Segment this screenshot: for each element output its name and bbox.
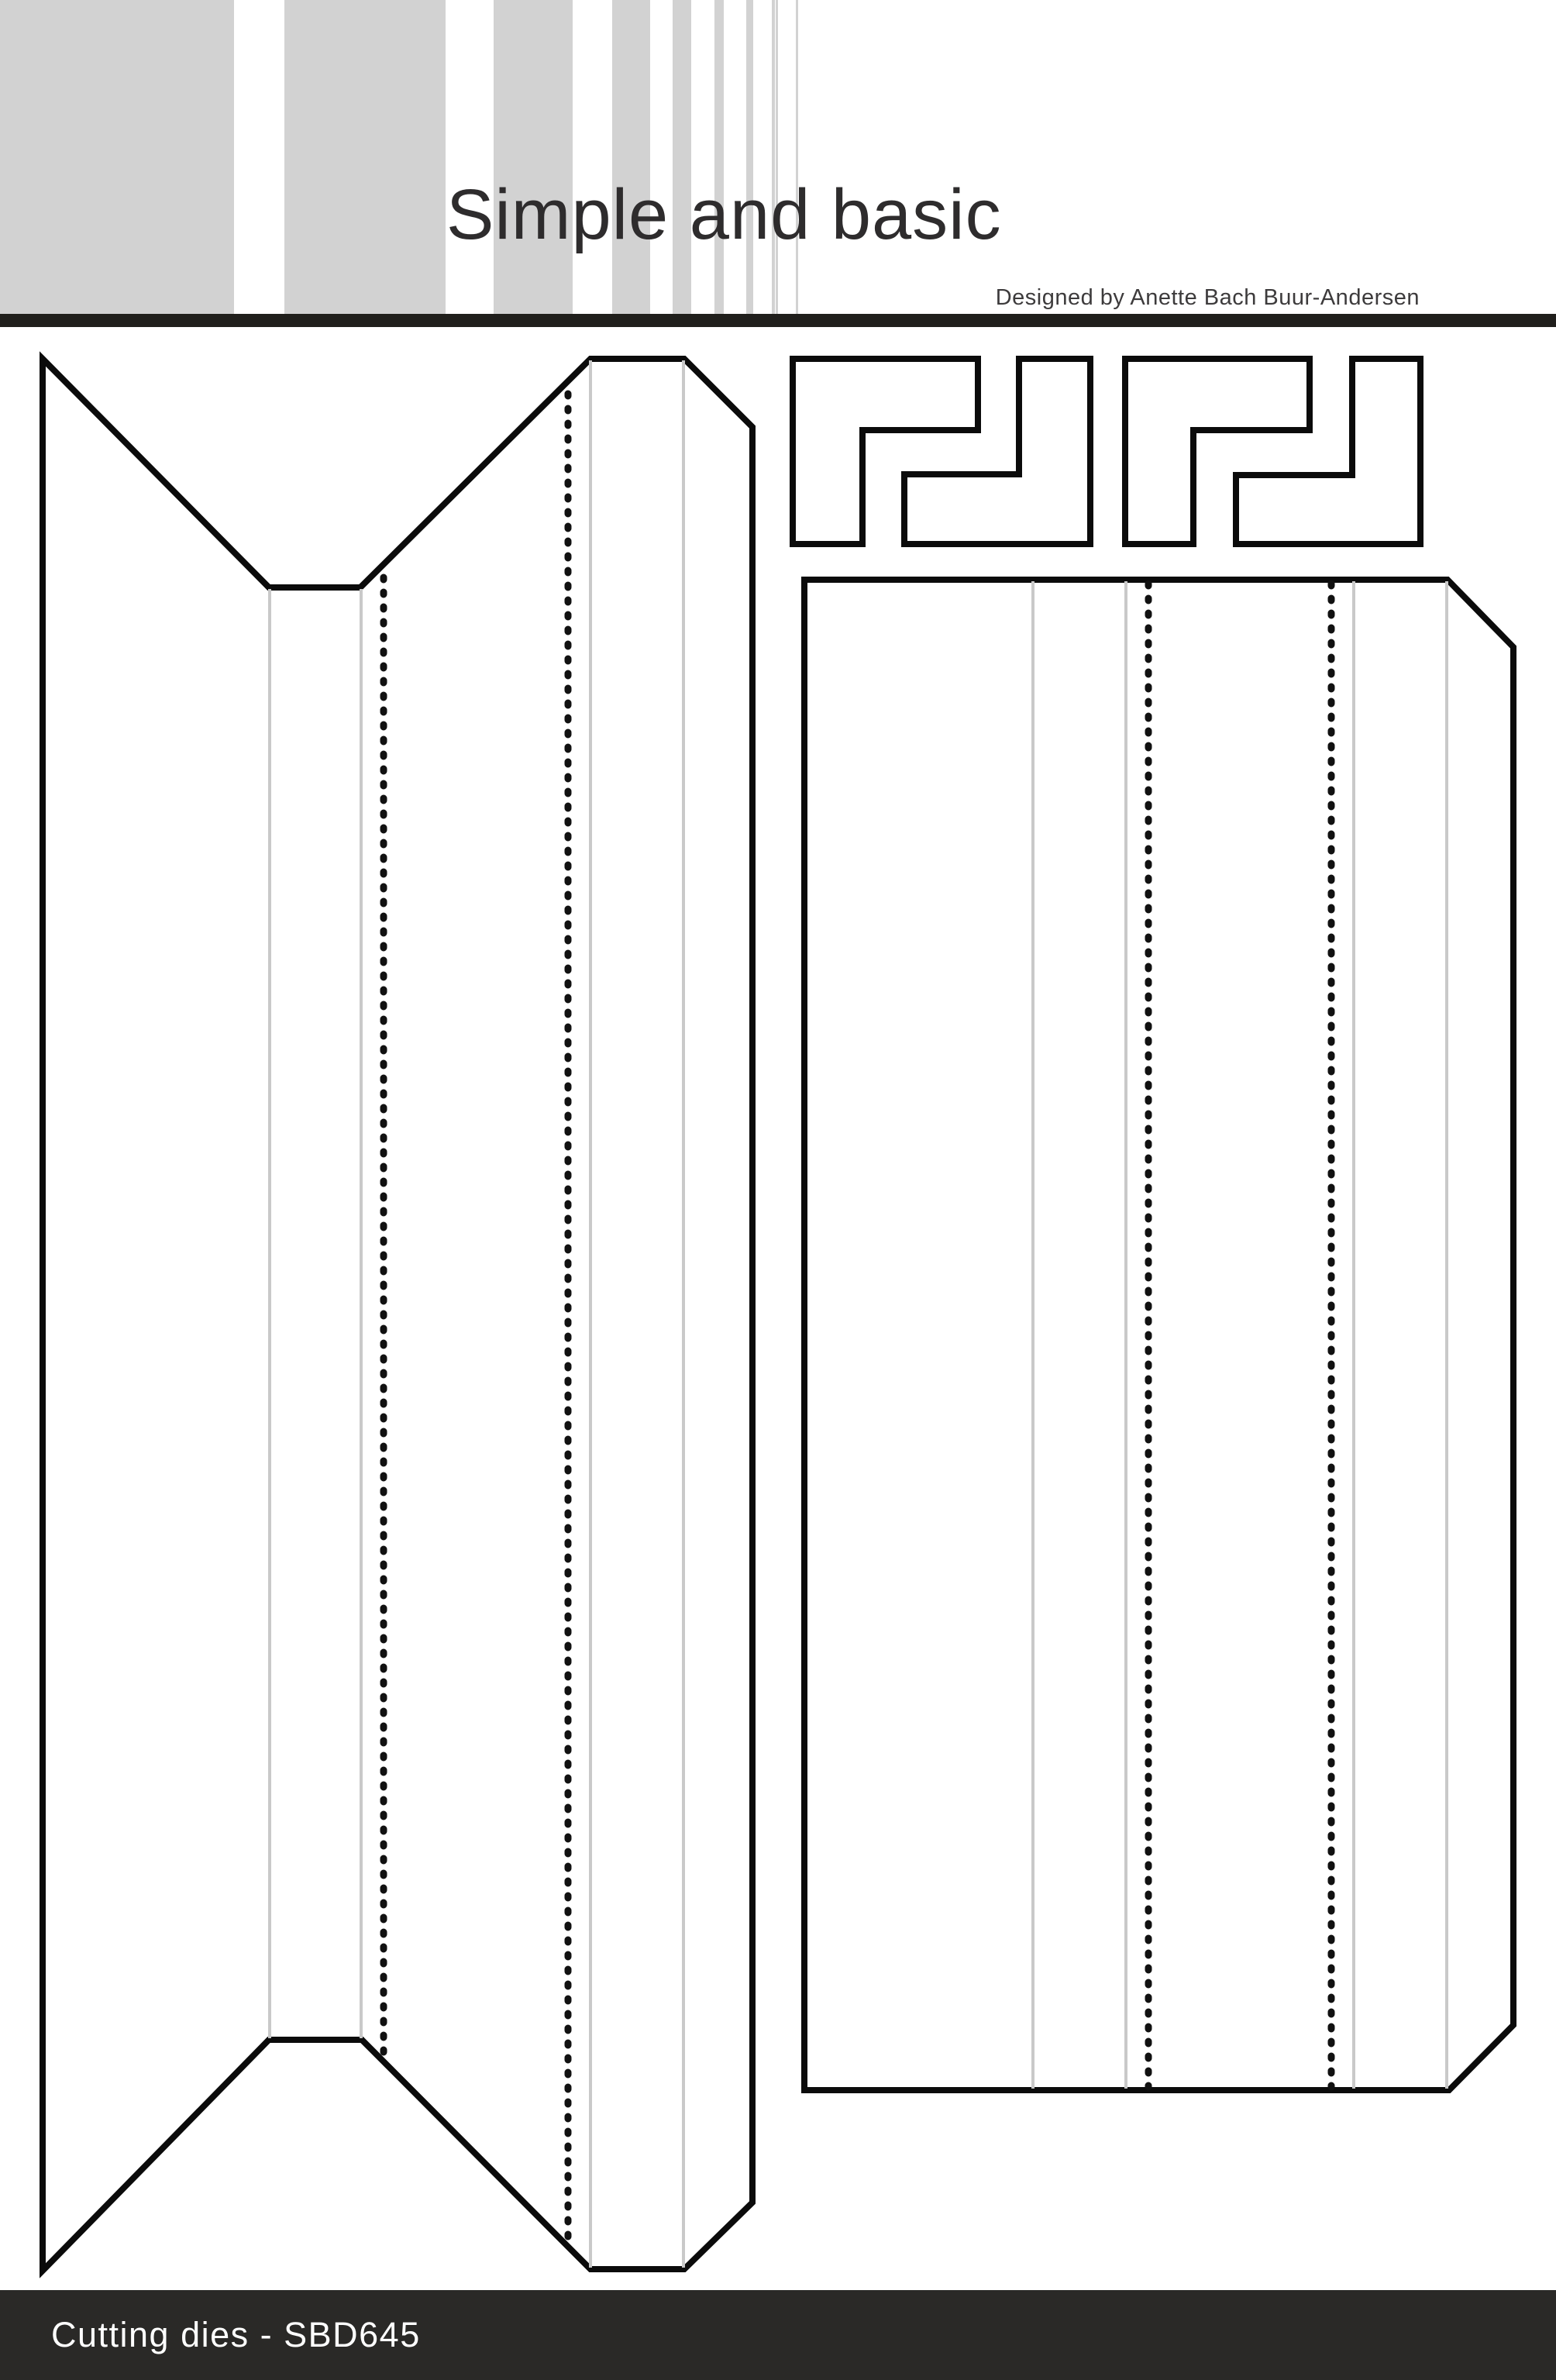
product-code-label: Cutting dies - SBD645: [51, 2315, 421, 2355]
die-cut-diagram: [0, 0, 1556, 2380]
corner-die-top-left-2: [1125, 359, 1310, 544]
die-panel-outline: [804, 580, 1513, 2090]
corner-die-bottom-right-1: [904, 359, 1090, 544]
corner-die-top-left-1: [793, 359, 978, 544]
die-trifold-outline: [43, 359, 752, 2271]
corner-die-bottom-right-2: [1236, 359, 1420, 544]
product-image-page: Simple and basic Designed by Anette Bach…: [0, 0, 1556, 2380]
footer-bar: Cutting dies - SBD645: [0, 2290, 1556, 2380]
